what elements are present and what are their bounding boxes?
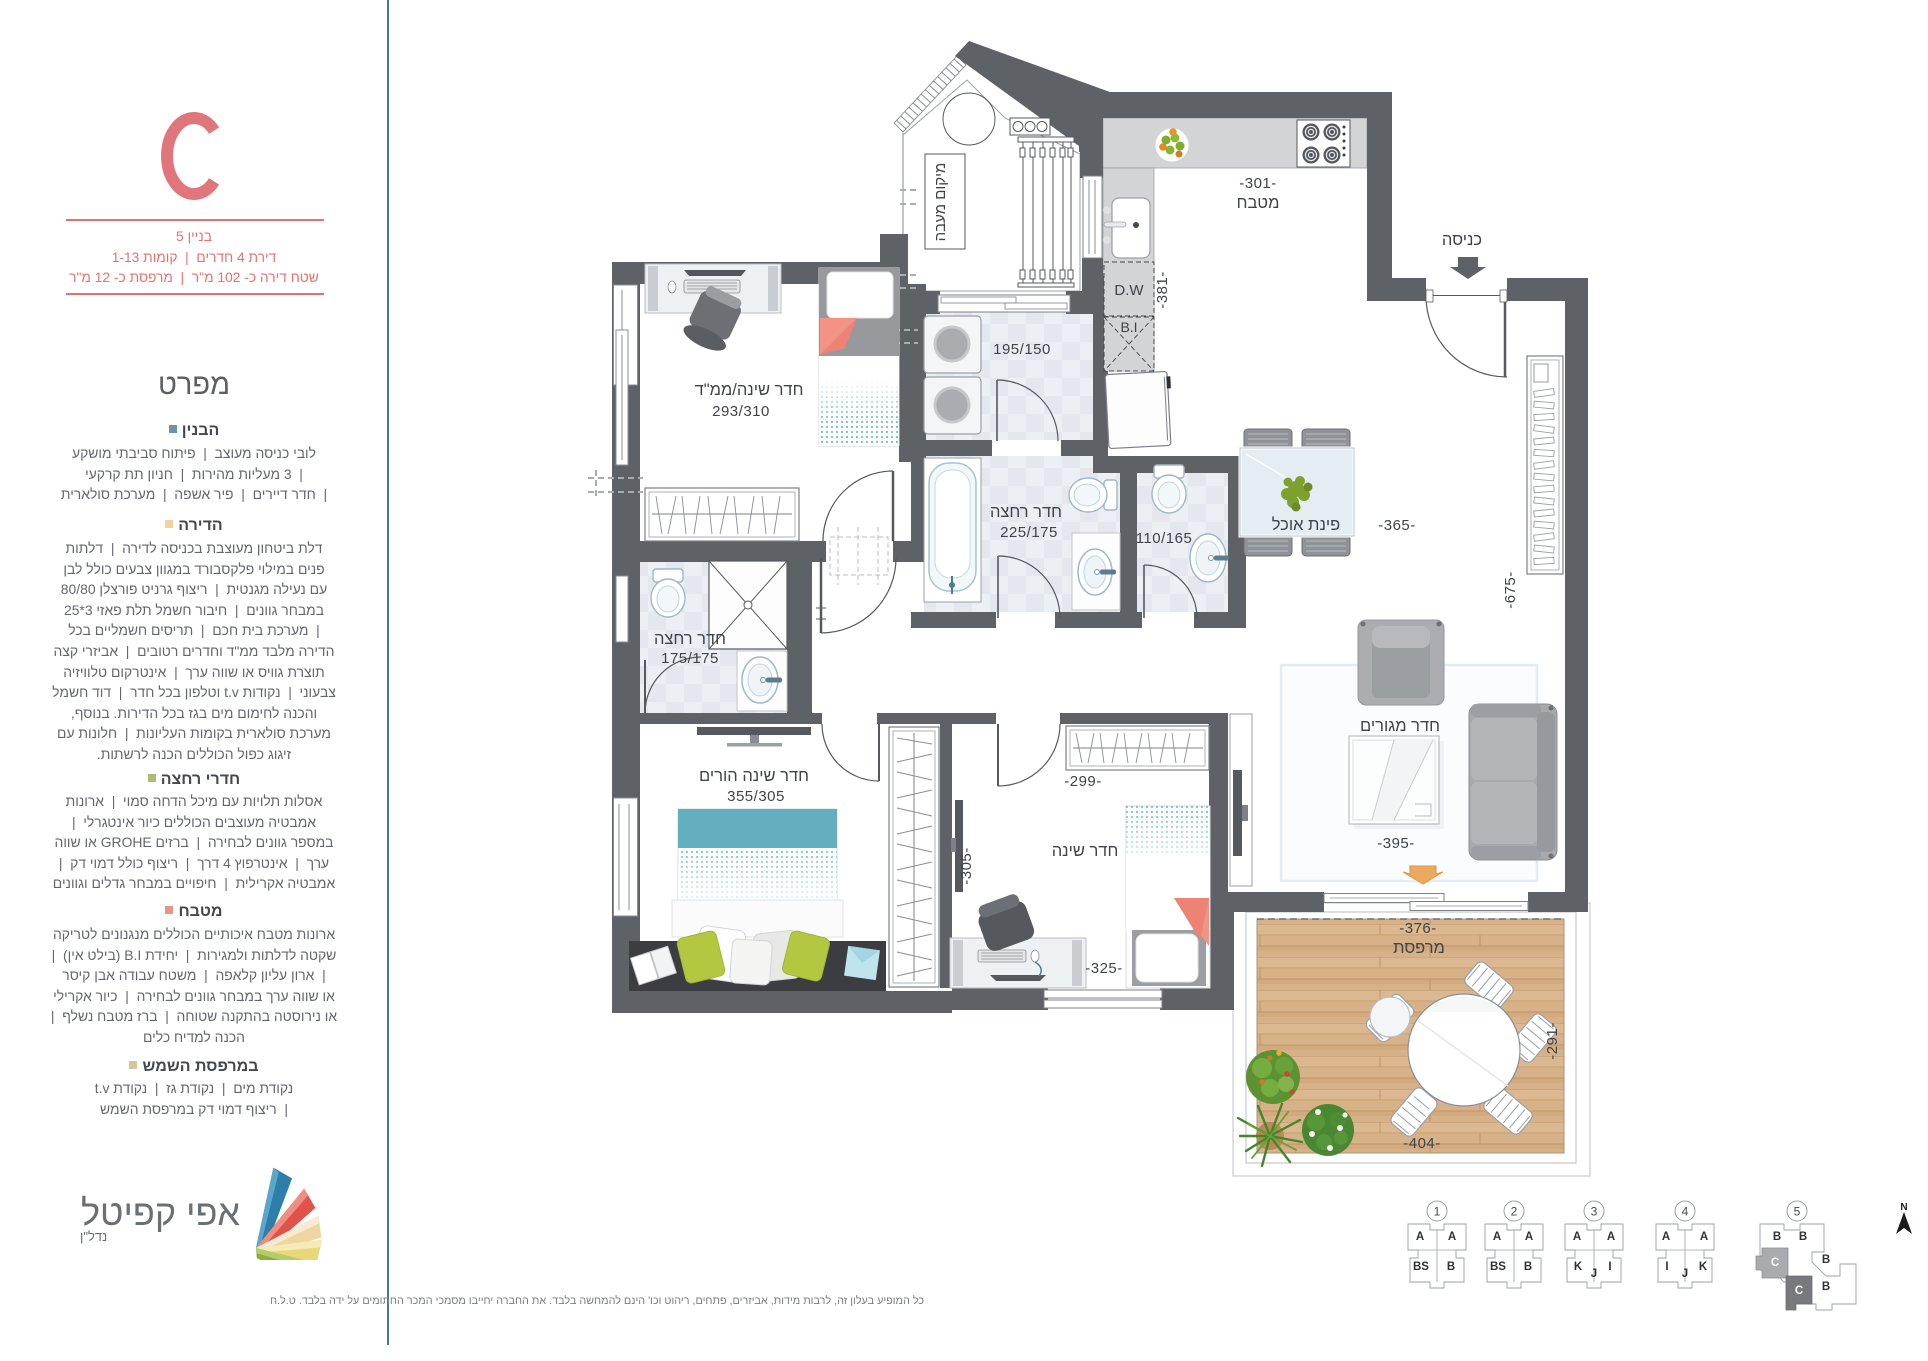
svg-text:-305-: -305-	[958, 847, 975, 885]
svg-text:C: C	[1771, 1257, 1779, 1269]
svg-text:A: A	[1525, 1231, 1533, 1243]
svg-text:A: A	[1493, 1231, 1501, 1243]
svg-text:מרפסת: מרפסת	[1393, 939, 1445, 957]
svg-text:4: 4	[1682, 1205, 1689, 1219]
svg-text:C: C	[1795, 1285, 1803, 1297]
svg-text:175/175: 175/175	[661, 650, 719, 667]
svg-text:1: 1	[1434, 1205, 1441, 1219]
svg-text:B: B	[1524, 1261, 1532, 1273]
svg-text:293/310: 293/310	[712, 403, 770, 420]
svg-text:-395-: -395-	[1377, 835, 1415, 852]
svg-text:B: B	[1799, 1231, 1807, 1243]
svg-text:מיקום מעבה: מיקום מעבה	[932, 163, 949, 242]
svg-text:110/165: 110/165	[1136, 530, 1193, 547]
svg-text:A: A	[1573, 1231, 1581, 1243]
svg-text:J: J	[1591, 1268, 1597, 1280]
svg-text:מטבח: מטבח	[1237, 194, 1280, 212]
svg-text:B: B	[1822, 1281, 1830, 1293]
svg-text:BS: BS	[1490, 1261, 1506, 1273]
svg-text:B: B	[1447, 1261, 1455, 1273]
svg-text:A: A	[1700, 1231, 1708, 1243]
svg-text:2: 2	[1511, 1205, 1518, 1219]
svg-text:חדר שינה הורים: חדר שינה הורים	[699, 767, 809, 785]
svg-text:K: K	[1699, 1261, 1708, 1273]
svg-text:A: A	[1607, 1231, 1615, 1243]
svg-text:A: A	[1416, 1231, 1424, 1243]
svg-text:3: 3	[1591, 1205, 1598, 1219]
svg-text:-291-: -291-	[1544, 1022, 1561, 1060]
svg-text:כניסה: כניסה	[1442, 231, 1482, 249]
svg-text:חדר מגורים: חדר מגורים	[1360, 717, 1440, 735]
svg-text:חדר רחצה: חדר רחצה	[990, 503, 1062, 521]
svg-text:I: I	[1608, 1261, 1611, 1273]
svg-text:-376-: -376-	[1399, 920, 1437, 937]
svg-text:5: 5	[1794, 1205, 1801, 1219]
svg-text:-365-: -365-	[1378, 517, 1416, 534]
svg-text:I: I	[1665, 1261, 1668, 1273]
svg-text:חדר שינה: חדר שינה	[1052, 842, 1119, 860]
svg-text:J: J	[1682, 1268, 1688, 1280]
svg-text:-404-: -404-	[1403, 1135, 1441, 1152]
svg-text:B: B	[1822, 1254, 1830, 1266]
svg-text:-301-: -301-	[1239, 175, 1277, 192]
svg-text:-675-: -675-	[1502, 571, 1519, 609]
svg-text:חדר שינה/ממ"ד: חדר שינה/ממ"ד	[695, 381, 804, 399]
svg-text:D.W: D.W	[1114, 282, 1144, 299]
svg-text:195/150: 195/150	[993, 341, 1051, 358]
svg-text:K: K	[1574, 1261, 1583, 1273]
svg-text:B.I: B.I	[1120, 319, 1137, 335]
svg-text:B: B	[1773, 1231, 1781, 1243]
svg-text:BS: BS	[1413, 1261, 1429, 1273]
svg-text:A: A	[1448, 1231, 1456, 1243]
svg-text:פינת אוכל: פינת אוכל	[1272, 516, 1340, 534]
svg-text:-299-: -299-	[1064, 773, 1102, 790]
svg-text:-325-: -325-	[1085, 960, 1123, 977]
svg-text:355/305: 355/305	[727, 788, 785, 805]
svg-text:A: A	[1662, 1231, 1670, 1243]
svg-text:N: N	[1900, 1202, 1907, 1213]
svg-text:חדר רחצה: חדר רחצה	[654, 630, 726, 648]
svg-text:-381-: -381-	[1154, 271, 1171, 309]
svg-text:225/175: 225/175	[1000, 524, 1058, 541]
